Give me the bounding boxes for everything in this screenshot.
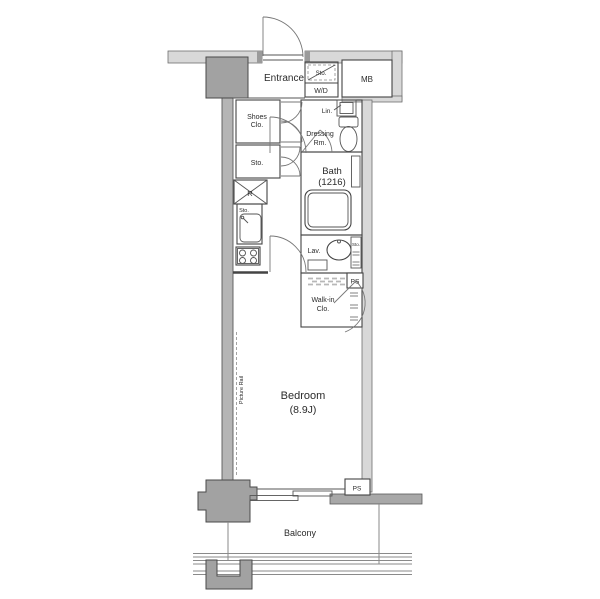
top-left-pillar — [206, 57, 248, 98]
sink-faucet-arm — [243, 218, 248, 223]
walk-in-top-shelf-hatch — [308, 279, 345, 285]
kitchen-storage-label: Sto. — [239, 208, 249, 214]
dressing-room-label-2: Rm. — [314, 140, 327, 147]
meter-box-label: MB — [361, 75, 373, 84]
storage-door-arc-top — [281, 147, 300, 166]
pipe-space-lower-label: PS — [353, 486, 362, 493]
toilet-tank — [339, 117, 358, 127]
fixtures — [234, 65, 370, 495]
stove-burner-3 — [240, 258, 246, 264]
stove-burner-4 — [251, 258, 257, 264]
picture-rail-label: Picture Rail — [239, 376, 245, 404]
bedroom-size-label: (8.9J) — [290, 404, 317, 416]
bath-counter — [352, 156, 361, 187]
entrance-label: Entrance — [264, 73, 304, 84]
washer-dryer-label: W/D — [314, 88, 328, 95]
dressing-room-label-1: Dressing — [306, 131, 334, 138]
entrance-jamb-right — [305, 51, 310, 63]
shoes-closet-label-2: Clo. — [251, 122, 264, 129]
sliding-window-panel-right — [293, 491, 332, 496]
outer-walls — [168, 51, 422, 522]
upper-storage-label: Sto. — [316, 71, 327, 77]
balcony-label: Balcony — [284, 528, 317, 538]
entrance-door-arc — [263, 17, 303, 57]
bathtub — [305, 190, 351, 230]
right-wall-top — [392, 51, 402, 101]
floor-plan-canvas: Entrance Sto. W/D MB Shoes Clo. Sto. Lin… — [0, 0, 600, 599]
toilet-bowl-icon — [340, 127, 357, 152]
linen-cabinet-inner — [340, 103, 353, 114]
storage-door-arc-bottom — [281, 157, 300, 176]
left-wall — [222, 98, 233, 480]
washbasin-faucet — [338, 240, 341, 243]
right-wall — [362, 100, 372, 492]
balcony-slab-edge — [330, 494, 422, 504]
walk-in-closet-label-2: Clo. — [317, 306, 330, 313]
walk-in-side-shelf-hatch — [350, 293, 358, 320]
lavatory-cabinet-hatch — [353, 252, 360, 265]
bath-size-label: (1216) — [318, 177, 345, 188]
bathtub-inner — [308, 193, 348, 227]
entrance-jamb-left — [257, 51, 262, 63]
pipe-space-upper-label: PS — [351, 279, 360, 286]
stove-burner-1 — [240, 250, 246, 256]
hall-storage-label: Sto. — [251, 160, 264, 167]
lavatory-storage-label: Sto. — [352, 242, 360, 247]
shoes-closet-label-1: Shoes — [247, 114, 267, 121]
washer-pan — [308, 260, 327, 270]
refrigerator-label: R — [247, 189, 253, 198]
linen-label: Lin. — [322, 108, 333, 115]
lavatory-label: Lav. — [308, 248, 321, 255]
bedroom-label: Bedroom — [281, 390, 326, 402]
bottom-left-pillar — [198, 480, 257, 522]
stove-burner-2 — [251, 250, 257, 256]
floor-plan-drawing: Entrance Sto. W/D MB Shoes Clo. Sto. Lin… — [0, 0, 600, 599]
bath-label: Bath — [322, 166, 342, 177]
walk-in-closet-label-1: Walk-in — [311, 297, 334, 304]
